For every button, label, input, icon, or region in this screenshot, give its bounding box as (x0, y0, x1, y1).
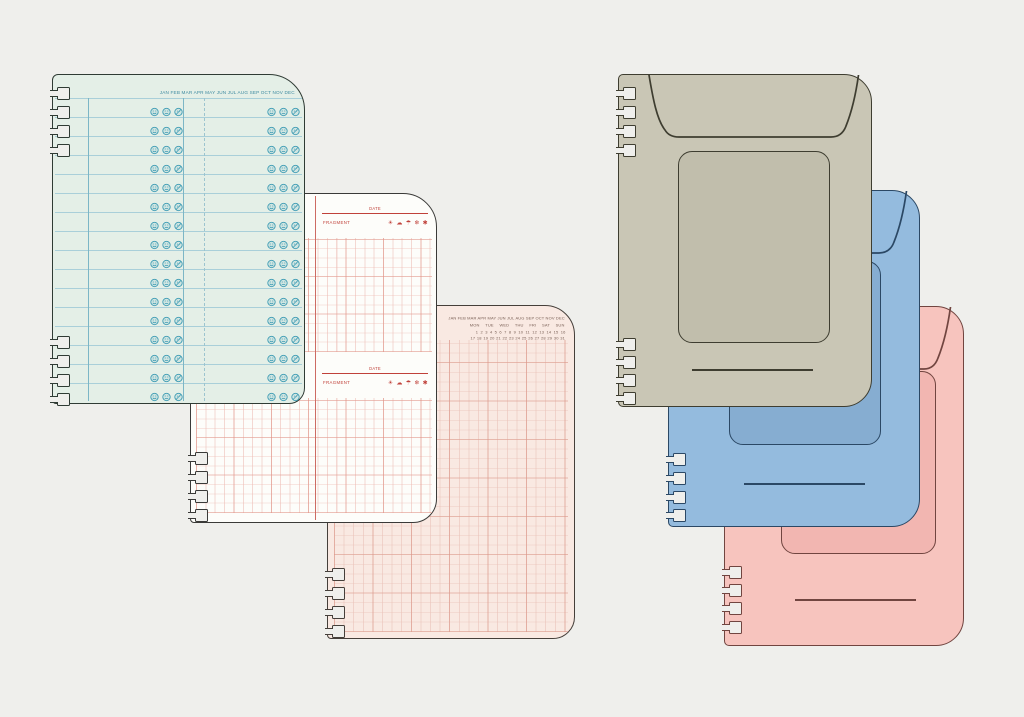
binder-hole (623, 374, 636, 387)
beige-cover (618, 74, 872, 407)
date-line (322, 373, 428, 374)
envelope-flap (619, 75, 873, 145)
binder-hole (57, 393, 70, 406)
binder-hole (623, 87, 636, 100)
binder-hole (57, 125, 70, 138)
weather-icons: ☀ ☁ ☂ ❄ ✱ (387, 218, 428, 226)
cover-label-line (692, 369, 813, 371)
binder-hole (57, 374, 70, 387)
center-divider-line (315, 196, 316, 520)
binder-hole (623, 356, 636, 369)
fragment-section: DATE FRAGMENT ☀ ☁ ☂ ❄ ✱ (322, 206, 428, 238)
binder-hole (332, 625, 345, 638)
fragment-section: DATE FRAGMENT ☀ ☁ ☂ ❄ ✱ (322, 366, 428, 398)
binder-hole (729, 621, 742, 634)
calendar-weekdays-text: MON TUE WED THU FRI SAT SUN (470, 323, 565, 328)
fragment-row: FRAGMENT ☀ ☁ ☂ ❄ ✱ (323, 376, 428, 388)
dot-grid-bottom (196, 398, 432, 513)
illustration-canvas: JAN FEB MAR APR MAY JUN JUL AUG SEP OCT … (0, 0, 1024, 717)
binder-hole (673, 491, 686, 504)
binder-hole (195, 471, 208, 484)
calendar-dates-text-1: 1 2 3 4 5 6 7 8 9 10 11 12 13 14 15 16 (475, 330, 565, 335)
binder-hole (57, 87, 70, 100)
binder-hole (673, 453, 686, 466)
binder-hole (729, 584, 742, 597)
binder-hole (332, 606, 345, 619)
binder-hole (332, 568, 345, 581)
binder-hole (57, 355, 70, 368)
fragment-row: FRAGMENT ☀ ☁ ☂ ❄ ✱ (323, 216, 428, 228)
binder-hole (673, 472, 686, 485)
binder-hole (195, 509, 208, 522)
binder-hole (623, 338, 636, 351)
date-line (322, 213, 428, 214)
binder-hole (57, 144, 70, 157)
cover-label-line (795, 599, 916, 601)
binder-hole (332, 587, 345, 600)
binder-hole (729, 602, 742, 615)
mood-icon-rows (53, 75, 306, 405)
monthly-log-page: JAN FEB MAR APR MAY JUN JUL AUG SEP OCT … (52, 74, 305, 404)
binder-hole (623, 106, 636, 119)
binder-hole (57, 106, 70, 119)
binder-hole (195, 490, 208, 503)
binder-hole (623, 392, 636, 405)
weather-icons: ☀ ☁ ☂ ❄ ✱ (387, 378, 428, 386)
binder-hole (623, 125, 636, 138)
cover-label-line (744, 483, 865, 485)
binder-hole (195, 452, 208, 465)
calendar-months-text: JAN FEB MAR APR MAY JUN JUL AUG SEP OCT … (449, 316, 565, 321)
binder-hole (729, 566, 742, 579)
binder-hole (673, 509, 686, 522)
fragment-label: FRAGMENT (323, 379, 350, 384)
date-label: DATE (369, 366, 381, 371)
binder-hole (623, 144, 636, 157)
date-label: DATE (369, 206, 381, 211)
fragment-label: FRAGMENT (323, 219, 350, 224)
binder-hole (57, 336, 70, 349)
cover-window (678, 151, 830, 343)
